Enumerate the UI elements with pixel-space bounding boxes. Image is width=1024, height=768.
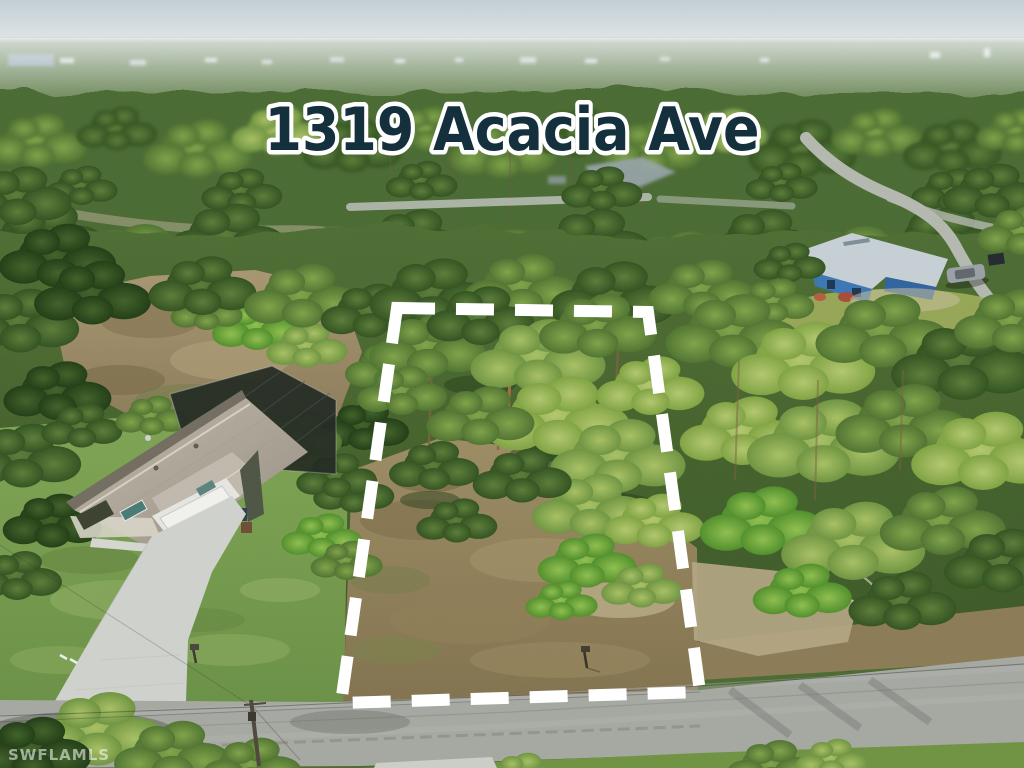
photo-canvas: 1319 Acacia Ave SWFLAMLS — [0, 0, 1024, 768]
listing-title: 1319 Acacia Ave — [265, 95, 760, 165]
mls-watermark: SWFLAMLS — [8, 746, 110, 764]
aerial-listing-photo: 1319 Acacia Ave SWFLAMLS — [0, 0, 1024, 768]
